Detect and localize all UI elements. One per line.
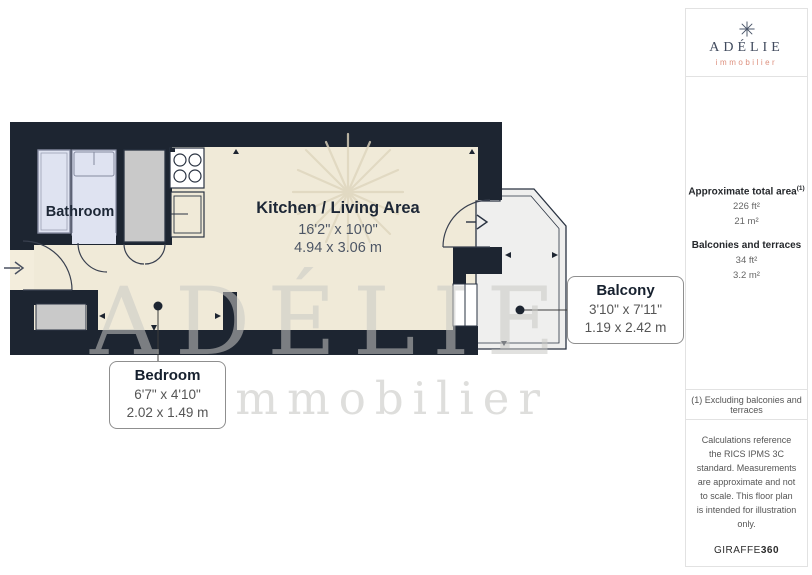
window [453, 284, 477, 326]
balcony-callout: Balcony 3'10" x 7'11" 1.19 x 2.42 m [567, 276, 684, 344]
bathroom-shower [38, 150, 70, 233]
brand-tagline: immobilier [716, 58, 777, 67]
disclaimer-section: Calculations reference the RICS IPMS 3C … [686, 420, 807, 566]
snowflake-icon [739, 21, 755, 37]
balcony-dims-imperial: 3'10" x 7'11" [576, 301, 675, 319]
balconies-metric: 3.2 m² [733, 270, 760, 281]
bedroom-furniture [36, 304, 86, 330]
balcony-label: Balcony [576, 282, 675, 299]
kitchen-living-dims-metric: 4.94 x 3.06 m [228, 239, 448, 257]
provider-name: GIRAFFE [714, 545, 761, 556]
footnote: (1) Excluding balconies and terraces [686, 390, 807, 421]
brand-name: ADÉLIE [709, 40, 784, 56]
kitchen-living-label: Kitchen / Living Area [228, 199, 448, 218]
bathroom-sink [72, 150, 116, 244]
balcony-dims-metric: 1.19 x 2.42 m [576, 319, 675, 337]
bedroom-dims-metric: 2.02 x 1.49 m [118, 404, 217, 422]
bedroom-callout: Bedroom 6'7" x 4'10" 2.02 x 1.49 m [109, 361, 226, 429]
bedroom-dims-imperial: 6'7" x 4'10" [118, 386, 217, 404]
kitchen-living-dims-imperial: 16'2" x 10'0" [228, 221, 448, 239]
total-area-label: Approximate total area(1) [688, 185, 804, 197]
total-area-footnote-ref: (1) [797, 185, 805, 192]
total-area-metric: 21 m² [734, 216, 758, 227]
provider-logo: GIRAFFE360 [696, 545, 797, 556]
logo: ADÉLIE immobilier [686, 9, 807, 77]
page: ADÉLIE immobilier Bathroom Kitchen / Liv… [0, 0, 812, 575]
kitchen-living-label-group: Kitchen / Living Area 16'2" x 10'0" 4.94… [228, 199, 448, 257]
stove [170, 148, 204, 188]
kitchen-sink [171, 192, 204, 237]
total-area-imperial: 226 ft² [733, 201, 760, 212]
bedroom-label: Bedroom [118, 367, 217, 384]
disclaimer-text: Calculations reference the RICS IPMS 3C … [696, 434, 797, 532]
provider-suffix: 360 [761, 545, 779, 556]
wardrobe [124, 150, 165, 242]
bathroom-label: Bathroom [36, 204, 124, 220]
area-stats: Approximate total area(1) 226 ft² 21 m² … [686, 77, 807, 389]
sidebar: ADÉLIE immobilier Approximate total area… [685, 8, 808, 567]
balconies-imperial: 34 ft² [736, 255, 758, 266]
balconies-label: Balconies and terraces [692, 240, 802, 251]
